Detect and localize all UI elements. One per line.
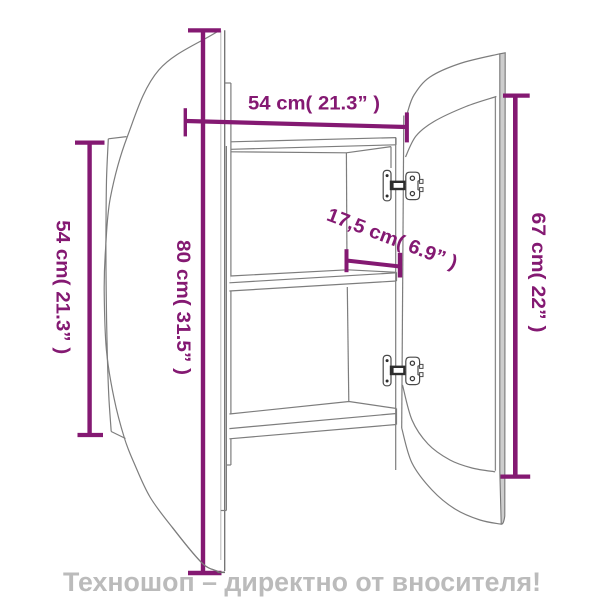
svg-text:54 cm( 21.3” ): 54 cm( 21.3” ) — [248, 93, 380, 115]
svg-text:Техношоп – директно от вносите: Техношоп – директно от вносителя! — [63, 567, 541, 597]
svg-text:67 cm( 22” ): 67 cm( 22” ) — [527, 213, 549, 333]
svg-text:54 cm( 21.3” ): 54 cm( 21.3” ) — [52, 220, 74, 354]
svg-text:80 cm( 31.5” ): 80 cm( 31.5” ) — [172, 240, 194, 375]
svg-text:17,5 cm( 6.9” ): 17,5 cm( 6.9” ) — [324, 204, 461, 274]
